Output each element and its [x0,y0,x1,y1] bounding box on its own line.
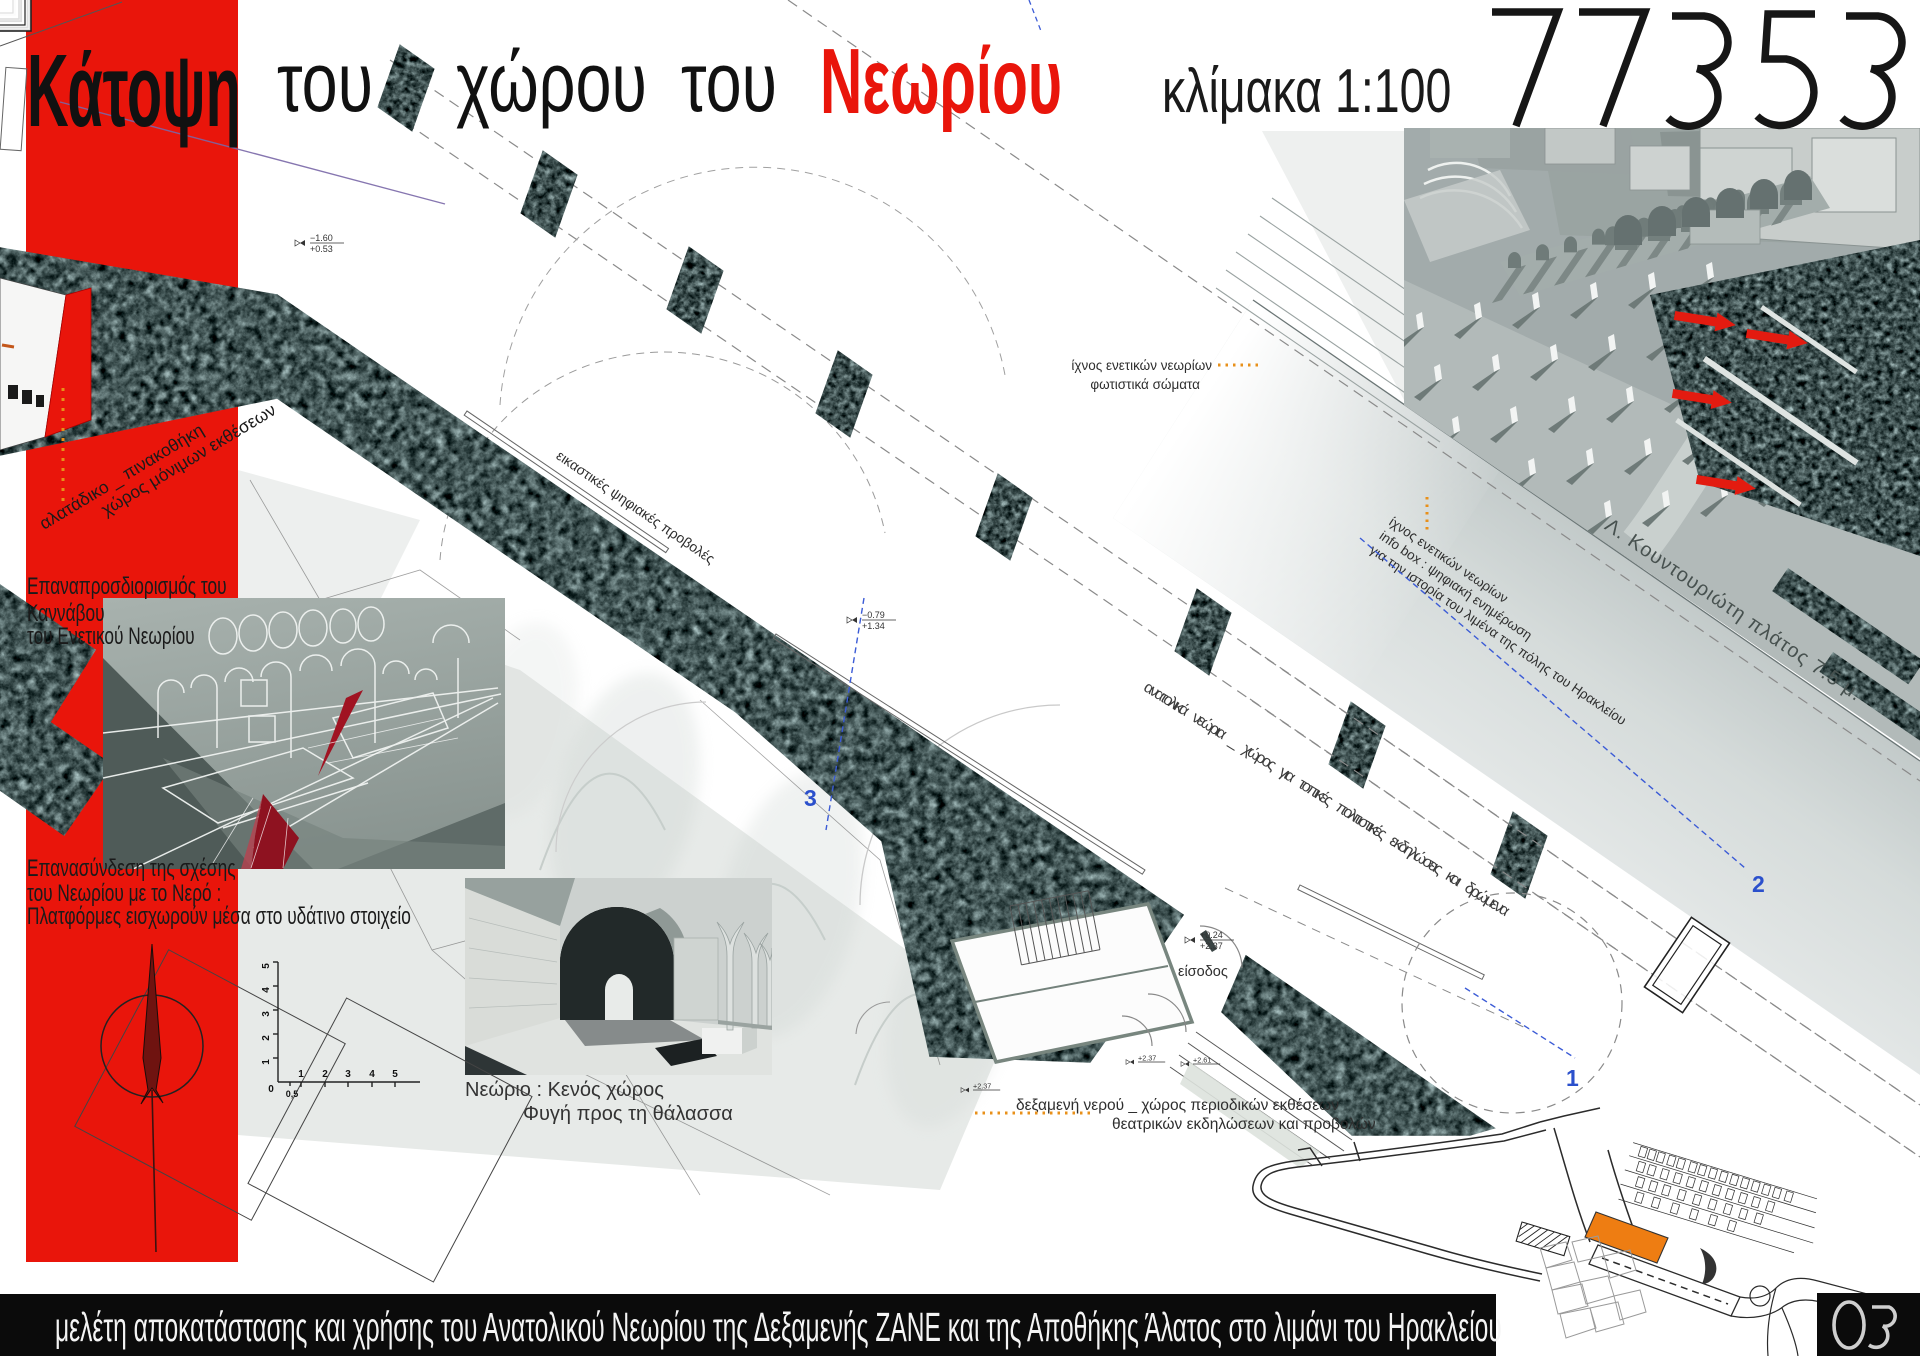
svg-text:Νεώριο : Κενός χώρος: Νεώριο : Κενός χώρος [465,1079,664,1101]
svg-text:+2.37: +2.37 [1138,1053,1156,1062]
svg-text:+2.37: +2.37 [973,1081,991,1090]
svg-text:κλίμακα 1:100: κλίμακα 1:100 [1162,55,1451,125]
svg-text:+2.37: +2.37 [1200,941,1223,951]
svg-text:Επαναπροσδιορισμός του: Επαναπροσδιορισμός του [27,573,227,599]
svg-text:0: 0 [268,1084,274,1095]
svg-text:2: 2 [322,1069,328,1080]
svg-text:+1.34: +1.34 [862,621,885,631]
svg-text:5: 5 [392,1069,398,1080]
svg-text:Πλατφόρμες εισχωρούν μέσα στο: Πλατφόρμες εισχωρούν μέσα στο υδάτινο στ… [27,903,411,929]
svg-text:1: 1 [298,1069,304,1080]
svg-text:είσοδος: είσοδος [1178,964,1228,980]
svg-text:ίχνος ενετικών νεωρίων: ίχνος ενετικών νεωρίων [1071,358,1212,373]
svg-text:+0.24: +0.24 [1200,930,1223,940]
svg-text:Κάτοψη: Κάτοψη [27,32,241,148]
svg-text:του: του [681,35,777,129]
svg-text:1: 1 [261,1059,272,1065]
svg-text:+2.61: +2.61 [1193,1055,1211,1064]
svg-text:μελέτη αποκατάστασης και χρήση: μελέτη αποκατάστασης και χρήσης του Ανατ… [55,1305,1502,1351]
svg-text:Νεωρίου: Νεωρίου [820,30,1062,133]
svg-text:2: 2 [261,1035,272,1041]
svg-text:δεξαμενή νερού _ χώρος περιοδι: δεξαμενή νερού _ χώρος περιοδικών εκθέσε… [1016,1097,1339,1114]
svg-text:του: του [277,35,373,129]
svg-text:Επανασύνδεση της σχέσης: Επανασύνδεση της σχέσης [27,855,236,881]
svg-text:θεατρικών εκδηλώσεων και προβο: θεατρικών εκδηλώσεων και προβολών [1112,1116,1376,1133]
svg-text:του Ενετικού Νεωρίου: του Ενετικού Νεωρίου [27,623,195,649]
svg-text:φωτιστικά σώματα: φωτιστικά σώματα [1090,377,1200,392]
svg-text:−1.60: −1.60 [310,233,333,243]
svg-text:3: 3 [804,785,817,811]
svg-text:1: 1 [1566,1065,1579,1091]
svg-text:χώρου: χώρου [456,35,647,129]
svg-text:3: 3 [345,1069,351,1080]
svg-text:2: 2 [1752,871,1765,897]
svg-text:+0.53: +0.53 [310,244,333,254]
svg-text:Φυγή προς τη θάλασσα: Φυγή προς τη θάλασσα [523,1103,733,1125]
svg-text:3: 3 [261,1011,272,1017]
svg-text:4: 4 [261,987,272,993]
svg-text:4: 4 [369,1069,375,1080]
svg-text:0,5: 0,5 [286,1089,299,1099]
svg-text:5: 5 [261,963,272,969]
svg-text:−0.79: −0.79 [862,610,885,620]
